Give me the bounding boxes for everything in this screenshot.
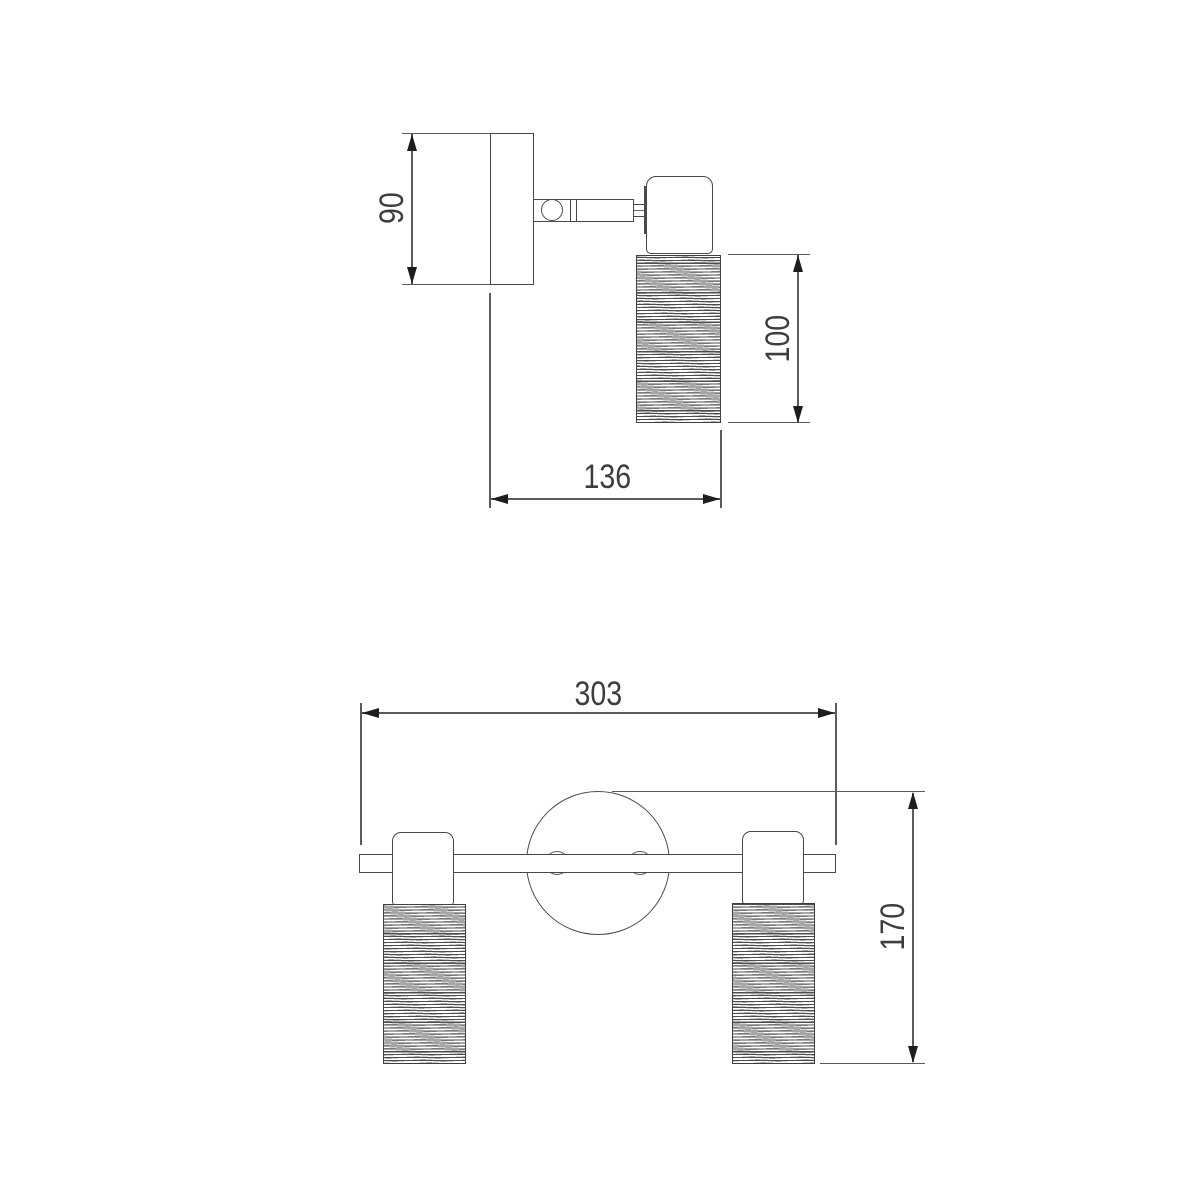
arrow-up-icon	[407, 134, 417, 151]
lamp-shade	[636, 255, 721, 423]
extension-line	[360, 703, 361, 845]
drawing-canvas: 90 100 136	[0, 0, 1200, 1200]
dim-shade-length-label: 100	[758, 289, 798, 389]
pivot-joint-circle	[541, 199, 563, 221]
wall-plate	[490, 133, 534, 285]
arrow-up-icon	[908, 792, 918, 809]
dimension-line	[797, 255, 798, 422]
dimension-line	[411, 134, 412, 284]
arrow-down-icon	[407, 267, 417, 284]
extension-line	[820, 1063, 925, 1064]
lamp-head	[646, 176, 713, 254]
dimension-line	[362, 712, 835, 713]
dim-height-label: 170	[873, 877, 913, 977]
joint-collar-line	[576, 200, 577, 222]
arrow-right-icon	[818, 708, 835, 718]
arrow-left-icon	[491, 494, 508, 504]
arrow-down-icon	[908, 1046, 918, 1063]
extension-line	[835, 703, 836, 845]
dimension-line	[491, 498, 720, 499]
arrow-down-icon	[793, 406, 803, 423]
arrow-left-icon	[362, 708, 379, 718]
lamp-shade-right	[732, 903, 815, 1064]
arrow-right-icon	[703, 494, 720, 504]
dim-plate-height-label: 90	[372, 168, 412, 248]
arrow-up-icon	[793, 255, 803, 272]
lamp-head-right	[742, 831, 804, 904]
extension-line	[612, 791, 925, 792]
dimension-line	[912, 793, 913, 1062]
extension-line	[720, 430, 721, 508]
lamp-shade-left	[383, 904, 466, 1064]
lamp-head-left	[392, 832, 454, 905]
extension-line	[489, 293, 490, 508]
dim-depth-label: 136	[557, 459, 657, 495]
joint-collar-line	[570, 200, 571, 222]
dim-width-label: 303	[548, 676, 648, 712]
